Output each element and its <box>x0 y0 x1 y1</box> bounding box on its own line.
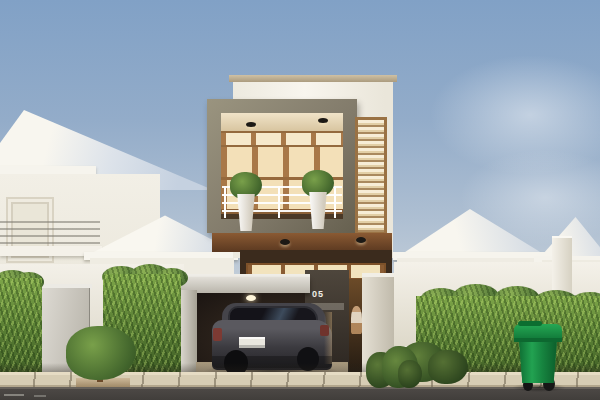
parapet-coping <box>229 75 397 82</box>
trash-bin-body <box>518 341 558 383</box>
car-tail-light-left <box>213 328 222 341</box>
left-house-eave <box>0 166 96 174</box>
balcony-downlight <box>318 118 328 123</box>
person-figure <box>351 306 362 334</box>
road-marking <box>34 395 46 397</box>
trash-bin-handle <box>518 321 542 326</box>
bin-shadow <box>512 383 566 392</box>
carport-light <box>246 295 256 301</box>
car-license-plate <box>239 337 265 348</box>
road-marking <box>4 394 24 396</box>
car-tail-light-right <box>320 325 329 336</box>
balcony-downlight <box>246 122 256 127</box>
hedge-left <box>0 278 42 376</box>
railing-post <box>224 186 226 218</box>
louver-window <box>355 117 387 235</box>
soffit-downlight <box>280 239 290 245</box>
carport-beam <box>180 277 310 293</box>
rendered-scene: 05 ALPHA THE HOME <box>0 0 600 400</box>
road <box>0 387 600 400</box>
soffit-downlight <box>356 237 366 243</box>
railing-post <box>278 186 280 218</box>
railing-post <box>334 186 336 218</box>
left-house-balcony-railing <box>0 221 100 248</box>
house-number: 05 <box>312 289 324 299</box>
balcony-transom-windows <box>221 131 343 147</box>
trash-bin-lid-lip <box>514 338 562 342</box>
